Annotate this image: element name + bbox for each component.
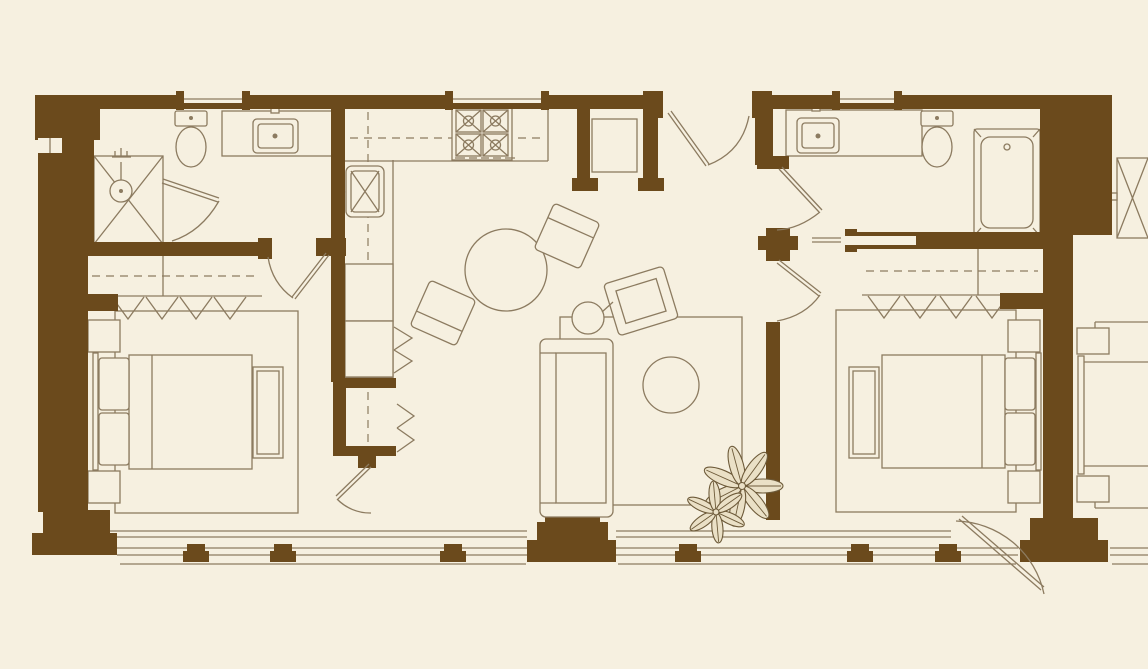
pillow [1005,358,1035,410]
entry-jamb [643,91,663,118]
bathtub [974,129,1040,236]
wall-foyer-pier [766,228,790,261]
mattress [882,355,1005,468]
wall-entry-closet [577,109,590,189]
pillow [99,358,129,410]
vanity-sink [222,103,332,156]
headboard [93,353,98,470]
headboard [1036,353,1041,470]
kitchen-stove [452,107,515,160]
column-base-right [1030,518,1098,540]
window [38,138,62,153]
wall-top-right-run [755,95,1112,109]
wall-top-right-block [1040,109,1112,235]
neighbor-nightstand [1077,476,1109,502]
pillow [99,413,129,465]
bench [849,367,879,458]
wall-kitchen-divider [331,109,345,382]
wall-top-left-run [35,95,655,109]
toilet [175,111,207,167]
column-base-left [43,510,110,533]
bench [253,367,283,458]
neighbor-nightstand [1077,328,1109,354]
shower-stall [94,148,163,244]
nightstand [1008,471,1040,503]
dining-table [465,229,547,311]
wall-bath-bedroom-divider [66,242,262,256]
coffee-table [643,357,699,413]
pillow [1005,413,1035,465]
nightstand [88,320,120,352]
nightstand [88,471,120,503]
sofa [540,339,613,517]
nightstand [1008,320,1040,352]
floor-plan-canvas [0,0,1148,669]
toilet [921,111,953,167]
floor-plan-drawing [0,0,1148,669]
floor-lamp [572,302,604,334]
mattress [129,355,252,469]
wall-right [1043,235,1073,520]
wall-left [38,95,68,512]
